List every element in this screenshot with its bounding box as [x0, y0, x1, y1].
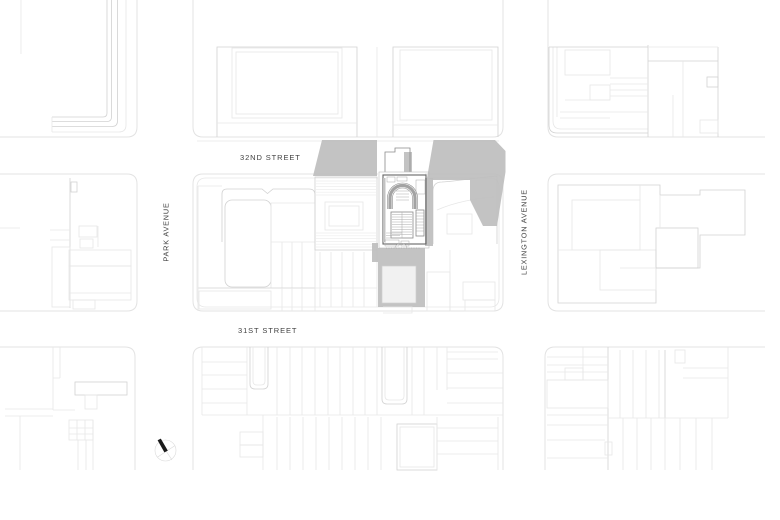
block-mid-center: [198, 176, 497, 311]
block-top-middle: [217, 47, 498, 137]
street-label-32nd: 32ND STREET: [240, 153, 301, 162]
block-mid-left: [0, 178, 131, 309]
block-bottom-right: [547, 347, 728, 470]
avenue-label-park: PARK AVENUE: [162, 202, 171, 261]
site-plan-canvas: 32ND STREET 31ST STREET PARK AVENUE LEXI…: [0, 0, 780, 520]
street-label-31st: 31ST STREET: [238, 326, 297, 335]
block-top-left: [21, 0, 126, 132]
block-top-right: [549, 45, 718, 137]
north-arrow-compass: [155, 439, 176, 461]
block-bottom-middle: [202, 347, 503, 470]
project-building-plan: [378, 148, 429, 248]
block-bottom-left: [5, 347, 127, 470]
avenue-label-lexington: LEXINGTON AVENUE: [520, 189, 529, 275]
shaded-building-roof: [382, 266, 416, 303]
block-mid-right: [558, 185, 745, 303]
site-plan: 32ND STREET 31ST STREET PARK AVENUE LEXI…: [0, 0, 780, 520]
